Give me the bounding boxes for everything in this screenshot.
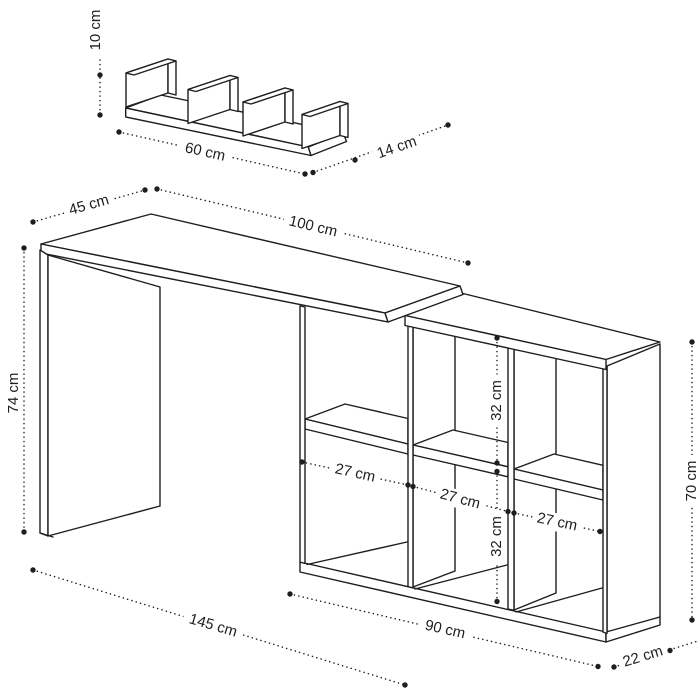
dim-label: 32 cm xyxy=(488,516,505,557)
dim-total-width: 145 cm xyxy=(30,567,407,687)
unit-left-panel-front xyxy=(300,306,305,564)
shelf-divider-edge-face xyxy=(230,76,238,112)
dim-endpoint xyxy=(410,484,415,489)
dim-endpoint xyxy=(445,122,450,127)
dim-endpoint xyxy=(310,170,315,175)
dim-endpoint xyxy=(494,469,499,474)
dim-endpoint xyxy=(405,482,410,487)
shelf-divider-edge-face xyxy=(285,88,293,124)
dim-label: 14 cm xyxy=(375,133,419,162)
unit-right-panel-front xyxy=(603,366,607,634)
dim-endpoint xyxy=(97,72,102,77)
dim-endpoint xyxy=(402,682,407,687)
furniture-dimension-diagram: 10 cm 60 cm 14 cm xyxy=(0,0,700,700)
dim-endpoint xyxy=(116,129,121,134)
dim-unit-cell1-width: 27 cm xyxy=(299,459,410,487)
dim-endpoint xyxy=(287,591,292,596)
dim-endpoint xyxy=(511,510,516,515)
diagram-page: 10 cm 60 cm 14 cm xyxy=(0,0,700,700)
unit-divider-front xyxy=(408,326,413,588)
dim-endpoint xyxy=(505,509,510,514)
dim-endpoint xyxy=(689,339,694,344)
shelf-divider-edge-face xyxy=(168,59,176,95)
dim-endpoint xyxy=(142,187,147,192)
dim-endpoint xyxy=(465,260,470,265)
dim-endpoint xyxy=(494,599,499,604)
dim-desk-height: 74 cm xyxy=(5,245,27,534)
dim-endpoint xyxy=(352,157,357,162)
desk-leg-panel-front xyxy=(40,250,48,536)
dim-endpoint xyxy=(494,335,499,340)
dim-label: 32 cm xyxy=(488,380,505,421)
dim-endpoint xyxy=(30,567,35,572)
dim-label: 70 cm xyxy=(683,461,700,502)
dim-endpoint xyxy=(597,529,602,534)
dim-endpoint xyxy=(595,664,600,669)
dim-unit-depth: 22 cm xyxy=(611,641,698,673)
dim-unit-height: 70 cm xyxy=(683,339,700,622)
unit-divider-front xyxy=(508,348,514,611)
unit-right-side-face xyxy=(607,344,660,633)
dim-unit-bottom-cell-height: 32 cm xyxy=(488,469,506,604)
desk-drawing xyxy=(40,214,463,537)
dim-endpoint xyxy=(302,171,307,176)
desk-leg-panel-side xyxy=(48,255,160,536)
dim-label: 145 cm xyxy=(187,610,239,640)
dim-label: 74 cm xyxy=(5,373,22,414)
dim-endpoint xyxy=(97,112,102,117)
dim-endpoint xyxy=(611,664,616,669)
dim-endpoint xyxy=(30,219,35,224)
dim-shelf-height: 10 cm xyxy=(87,5,105,118)
dim-endpoint xyxy=(21,245,26,250)
dim-endpoint xyxy=(689,617,694,622)
dim-endpoint xyxy=(494,460,499,465)
dim-endpoint xyxy=(154,186,159,191)
dim-endpoint xyxy=(21,529,26,534)
dim-endpoint xyxy=(667,648,672,653)
unit-cell-floor-edge xyxy=(307,542,407,565)
shelf-divider-edge-face xyxy=(340,102,348,138)
dim-label: 10 cm xyxy=(87,10,104,51)
dim-endpoint xyxy=(299,459,304,464)
